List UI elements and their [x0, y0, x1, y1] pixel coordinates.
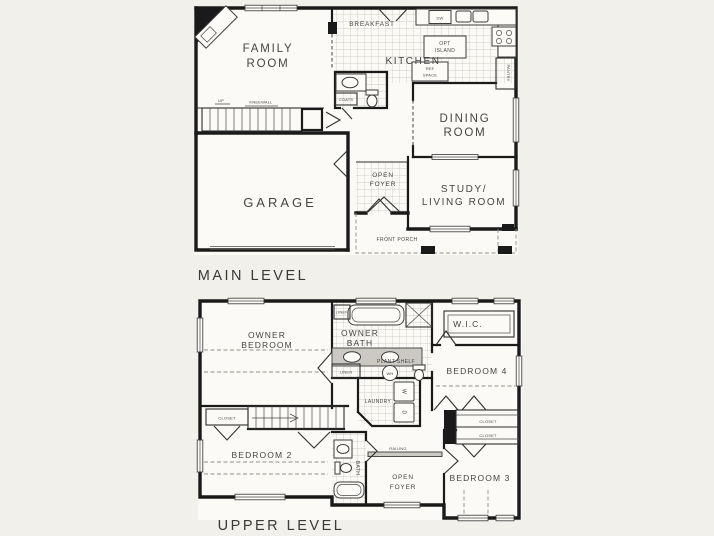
bedroom4-label: BEDROOM 4 — [447, 366, 508, 376]
study-living-label: LIVING ROOM — [422, 197, 506, 208]
toilet-icon — [366, 90, 378, 107]
stairs-up-label: UP — [218, 98, 224, 103]
opt-island-label: ISLAND — [435, 48, 455, 54]
bath-label: BATH — [354, 461, 360, 476]
washer-label: W — [401, 389, 407, 394]
bedroom2-label: BEDROOM 2 — [232, 450, 293, 460]
family-room-label: FAMILY — [243, 43, 294, 55]
coats-label: COATS — [339, 97, 354, 102]
linen-small-label: LINEN — [336, 310, 349, 315]
toilet-icon — [413, 365, 425, 381]
open-foyer-label: FOYER — [390, 484, 416, 491]
kneewall-label: KNEEWALL — [249, 100, 273, 105]
toilet-icon — [335, 462, 352, 474]
open-foyer-label: OPEN — [372, 172, 394, 179]
owner-bedroom-label: OWNER — [248, 330, 286, 340]
pantry-label: PANTRY — [506, 64, 511, 81]
opt-island — [424, 36, 466, 58]
closet-label: CLOSET — [218, 416, 236, 421]
floor-plan-drawing: FAMILY ROOM BREAKFAST KITCHEN DW OPT ISL… — [0, 0, 714, 536]
closet-label: CLOSET — [479, 433, 497, 438]
railing-label: RAILING — [389, 446, 406, 451]
front-porch-label: FRONT PORCH — [377, 237, 418, 243]
linen-label: LINEN — [340, 370, 353, 375]
dishwasher-label: DW — [436, 16, 443, 21]
breakfast-label: BREAKFAST — [349, 21, 395, 28]
garage-label: GARAGE — [243, 195, 317, 210]
owner-bath-label: OWNER — [341, 328, 379, 338]
main-level-title: MAIN LEVEL — [198, 268, 308, 284]
owner-bath-label: BATH — [347, 338, 373, 348]
ref-space-label: SPACE — [423, 73, 437, 78]
porch-post — [502, 224, 514, 231]
plant-shelf-label: PLANT SHELF — [377, 359, 415, 365]
porch-post — [498, 246, 512, 254]
floor-plan-page: FAMILY ROOM BREAKFAST KITCHEN DW OPT ISL… — [0, 0, 714, 536]
tub-icon — [348, 305, 404, 325]
railing — [368, 452, 442, 457]
opt-island-label: OPT — [439, 41, 450, 47]
main-level-plan: FAMILY ROOM BREAKFAST KITCHEN DW OPT ISL… — [194, 5, 519, 284]
upper-level-plan: OWNER BEDROOM OWNER BATH LINEN W.I.C. PL… — [197, 298, 522, 534]
open-foyer-label: FOYER — [370, 181, 396, 188]
porch-post — [421, 246, 435, 254]
bath-sink-icon — [337, 445, 349, 454]
vanity-sink-icon — [344, 352, 361, 362]
bedroom3-label: BEDROOM 3 — [450, 473, 511, 483]
stove-icon — [492, 27, 516, 46]
owner-bedroom-label: BEDROOM — [241, 340, 293, 350]
laundry-label: LAUNDRY — [365, 399, 392, 405]
study-living-label: STUDY/ — [441, 184, 487, 195]
dining-room-label: ROOM — [444, 127, 487, 139]
wic-label: W.I.C. — [453, 319, 483, 329]
dining-room-label: DINING — [439, 113, 490, 125]
water-heater-label: WH — [386, 371, 393, 376]
tub-icon — [334, 482, 364, 498]
powder-sink-icon — [342, 77, 358, 87]
upper-level-title: UPPER LEVEL — [218, 518, 345, 534]
kitchen-sink-icon — [456, 11, 471, 22]
ref-space-label: REF — [426, 66, 435, 71]
family-room-label: ROOM — [247, 58, 290, 70]
dryer-label: D — [401, 410, 407, 414]
closet-label: CLOSET — [479, 419, 497, 424]
open-foyer-label: OPEN — [392, 474, 414, 481]
